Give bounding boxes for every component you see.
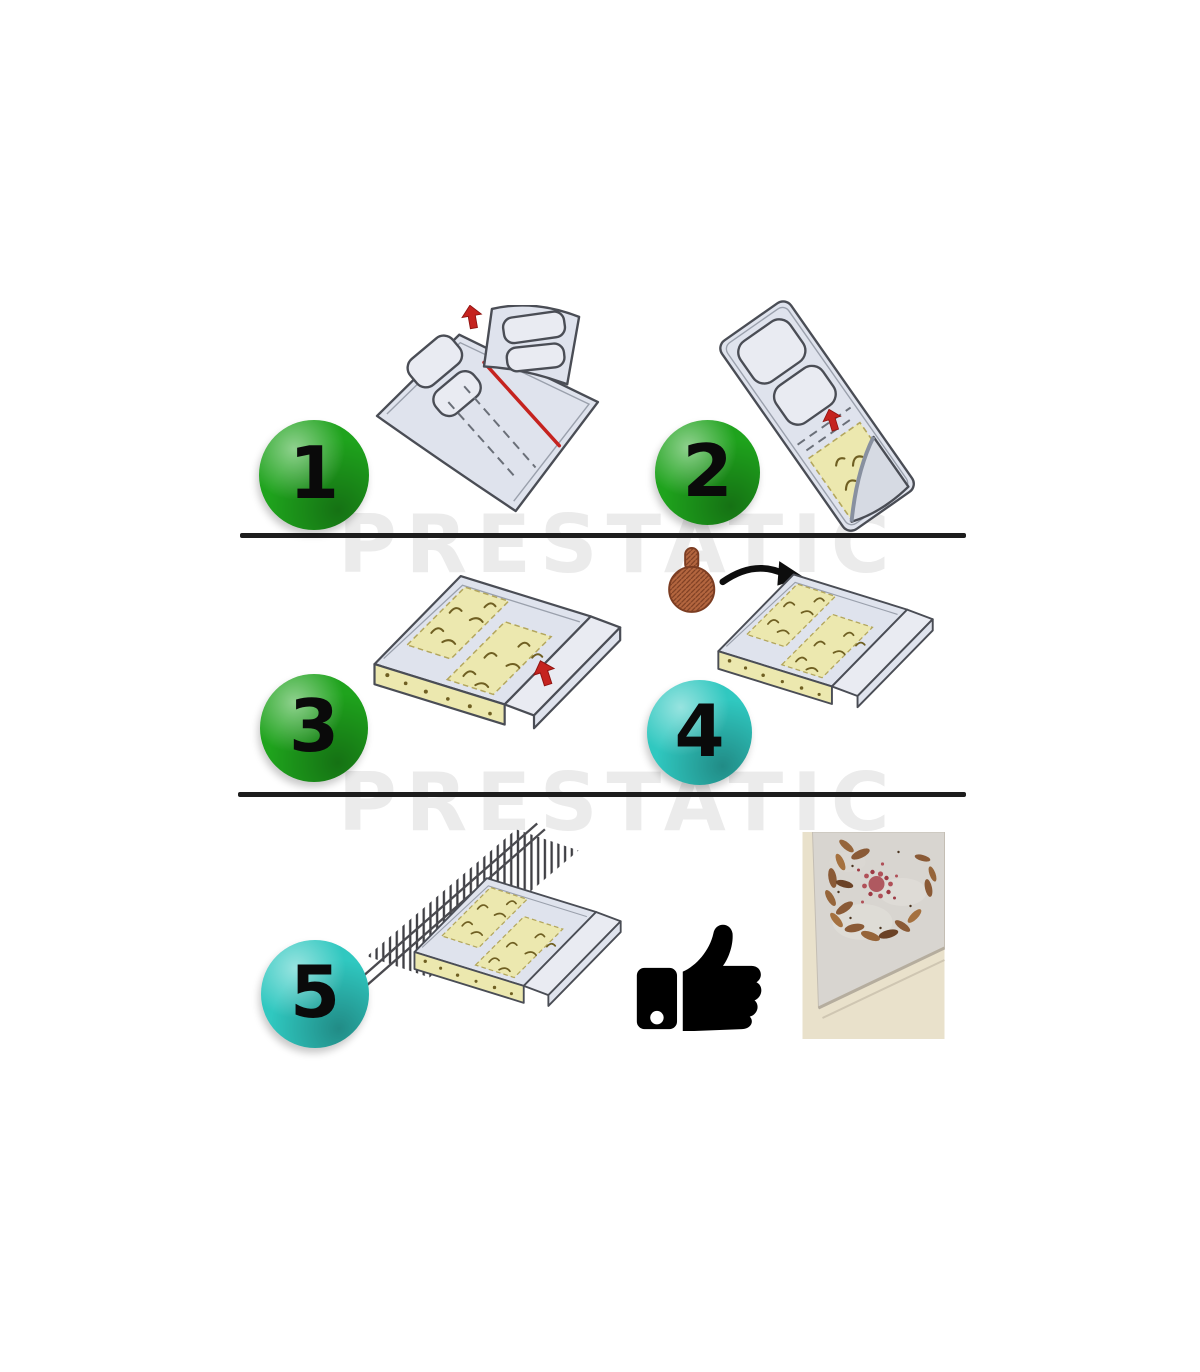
assembled-trap — [718, 574, 932, 707]
section-divider — [240, 533, 966, 538]
step-2-badge: 2 — [655, 420, 760, 525]
cockroaches-on-glue-board-photo — [802, 832, 945, 1039]
step-4-badge: 4 — [647, 680, 752, 785]
step-1-badge: 1 — [259, 420, 369, 530]
step-2-number: 2 — [682, 435, 732, 507]
thumbs-up-icon — [633, 918, 767, 1033]
step-3-number: 3 — [289, 690, 339, 762]
step-5-badge: 5 — [261, 940, 369, 1048]
bait-capsule-icon — [669, 548, 714, 612]
step-3-illustration — [358, 552, 633, 745]
red-arrow-up-icon — [460, 305, 483, 330]
step-5-number: 5 — [290, 956, 340, 1028]
step-1-number: 1 — [289, 437, 339, 509]
step-3-badge: 3 — [260, 674, 368, 782]
step-4-number: 4 — [674, 695, 724, 767]
instruction-sheet: PRESTATIC PRESTATIC 1 2 3 4 5 — [0, 0, 1200, 1372]
step-1-illustration — [365, 305, 603, 518]
section-divider — [238, 792, 966, 797]
assembled-trap — [375, 576, 621, 728]
step-5-illustration — [333, 812, 651, 1014]
